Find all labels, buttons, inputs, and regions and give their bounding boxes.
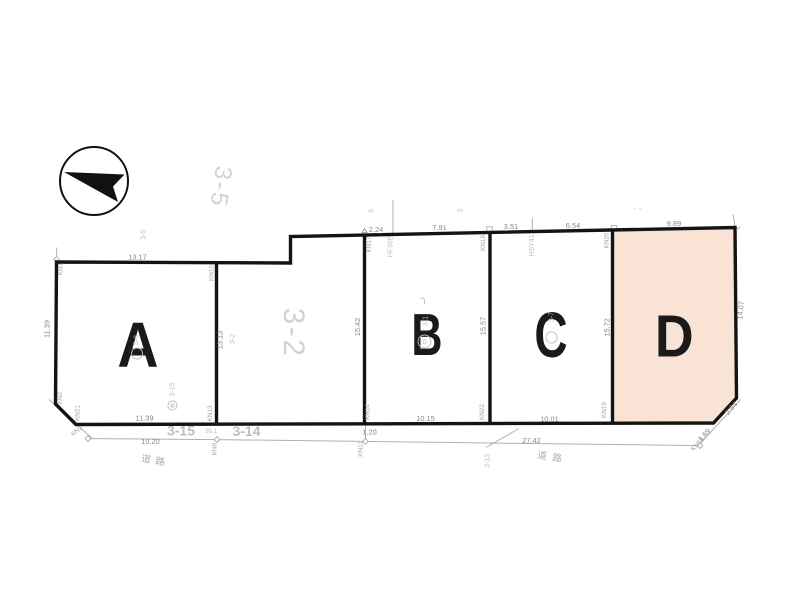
svg-text:85.1: 85.1 <box>206 429 218 435</box>
svg-text:3-15: 3-15 <box>170 382 177 396</box>
svg-text:3.51: 3.51 <box>504 222 518 231</box>
svg-text:11.39: 11.39 <box>136 414 154 423</box>
svg-text:B: B <box>411 302 442 368</box>
svg-text:14.07: 14.07 <box>735 301 746 320</box>
svg-text:3-2: 3-2 <box>277 308 310 359</box>
svg-text:KN18: KN18 <box>480 235 487 251</box>
svg-text:15.72: 15.72 <box>603 318 612 337</box>
svg-text:KN11: KN11 <box>358 441 365 457</box>
svg-text:HF39B: HF39B <box>388 235 395 257</box>
svg-text:3-13: 3-13 <box>485 454 492 468</box>
svg-text:9.89: 9.89 <box>667 219 681 228</box>
svg-text:C: C <box>534 300 567 371</box>
svg-text:3-6: 3-6 <box>134 335 141 345</box>
svg-text:KN14: KN14 <box>365 404 372 420</box>
svg-text:KN19: KN19 <box>601 402 608 418</box>
svg-text:3-7: 3-7 <box>549 312 556 322</box>
svg-text:6.54: 6.54 <box>566 221 580 230</box>
svg-text:KN1: KN1 <box>58 262 65 275</box>
svg-text:~ ~: ~ ~ <box>634 207 643 213</box>
svg-text:KN2: KN2 <box>57 391 64 404</box>
svg-text:KN10: KN10 <box>209 265 216 281</box>
svg-text:10.20: 10.20 <box>141 437 160 446</box>
svg-text:1.20: 1.20 <box>362 428 376 437</box>
svg-text:KN22: KN22 <box>479 404 486 420</box>
svg-text:3-5: 3-5 <box>141 229 148 239</box>
svg-text:HSY41: HSY41 <box>529 234 536 256</box>
svg-text:KN20: KN20 <box>604 232 611 248</box>
svg-text:D: D <box>422 340 427 346</box>
svg-text:3-14: 3-14 <box>232 423 260 439</box>
svg-text:13.17: 13.17 <box>128 253 147 262</box>
svg-text:3-2: 3-2 <box>230 334 237 344</box>
svg-text:KN21: KN21 <box>75 405 82 421</box>
svg-text:3-1: 3-1 <box>423 316 430 326</box>
svg-text:11.39: 11.39 <box>43 320 52 338</box>
svg-text:15.57: 15.57 <box>479 317 488 336</box>
svg-text:KN13: KN13 <box>207 405 214 421</box>
svg-text:KN17: KN17 <box>366 236 373 252</box>
svg-text:2.24: 2.24 <box>369 225 383 234</box>
svg-text:3: 3 <box>458 208 465 212</box>
svg-text:3-15: 3-15 <box>167 423 195 439</box>
svg-text:D: D <box>655 303 694 369</box>
svg-text:3: 3 <box>369 209 376 213</box>
svg-text:10.01: 10.01 <box>540 415 559 424</box>
svg-text:27.42: 27.42 <box>522 436 541 445</box>
svg-text:7.91: 7.91 <box>432 223 446 232</box>
svg-text:KN9: KN9 <box>212 442 219 455</box>
svg-text:15.42: 15.42 <box>353 318 362 337</box>
svg-text:10.15: 10.15 <box>416 414 435 423</box>
svg-text:13.13: 13.13 <box>216 331 225 350</box>
